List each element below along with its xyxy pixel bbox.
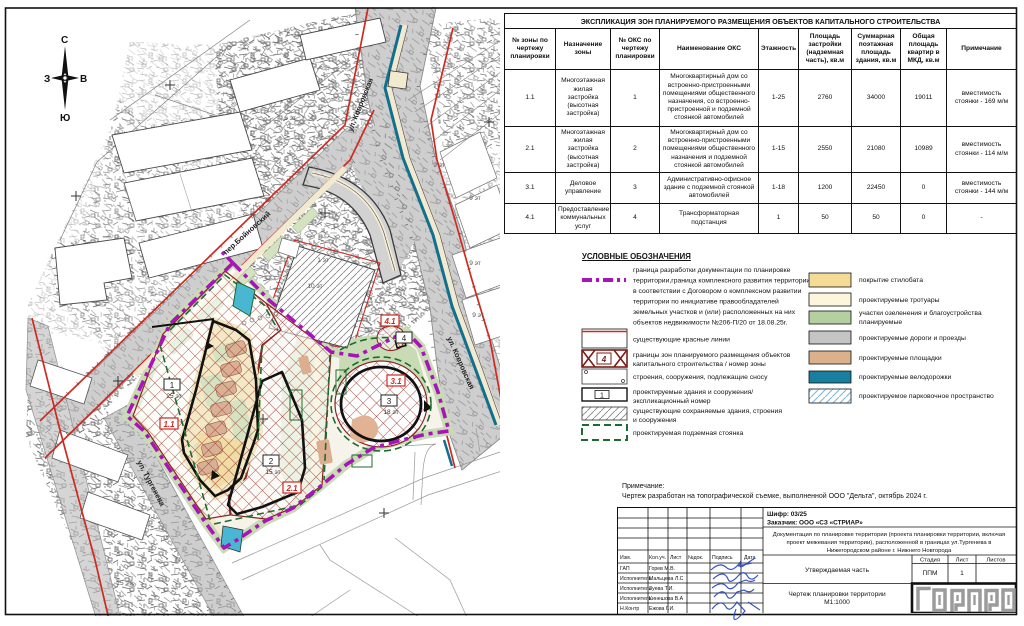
- svg-text:Ю: Ю: [60, 113, 70, 124]
- svg-text:1: 1: [170, 381, 175, 390]
- svg-text:капитального строительства / н: капитального строительства / номер зоны: [633, 361, 766, 368]
- svg-text:С: С: [61, 35, 68, 46]
- svg-text:граница разработки документаци: граница разработки документации по плани…: [633, 266, 791, 274]
- svg-text:в соответствии с Договором о к: в соответствии с Договором о комплексном…: [633, 288, 802, 295]
- svg-text:проектируемые дороги и проезды: проектируемые дороги и проезды: [859, 335, 966, 342]
- svg-text:проектируемые велодорожки: проектируемые велодорожки: [859, 374, 952, 381]
- svg-text:1 эт: 1 эт: [317, 257, 329, 264]
- svg-text:покрытие стилобата: покрытие стилобата: [859, 276, 923, 284]
- svg-text:25 эт: 25 эт: [166, 393, 181, 400]
- svg-text:проектируемые здания и сооруже: проектируемые здания и сооружения/: [633, 389, 753, 396]
- svg-text:4.1: 4.1: [383, 317, 396, 326]
- svg-text:проектируемые тротуары: проектируемые тротуары: [859, 297, 940, 304]
- svg-text:планируемые: планируемые: [859, 319, 902, 326]
- svg-text:проектируемое парковочное прос: проектируемое парковочное пространство: [859, 393, 994, 400]
- svg-text:4: 4: [601, 355, 607, 364]
- svg-text:9 эт: 9 эт: [472, 312, 484, 319]
- svg-text:18 эт: 18 эт: [383, 409, 398, 416]
- svg-text:строения, сооружения, подлежащ: строения, сооружения, подлежащие сносу: [633, 374, 768, 381]
- svg-text:9 эт: 9 эт: [433, 162, 445, 169]
- svg-text:территории,граница комплексног: территории,граница комплексного развития…: [633, 278, 810, 285]
- svg-text:3.1: 3.1: [390, 377, 402, 386]
- svg-text:1: 1: [600, 393, 604, 400]
- svg-text:В: В: [80, 74, 87, 85]
- svg-text:существующие красные линии: существующие красные линии: [633, 337, 730, 344]
- svg-text:земельных участков и (или) рас: земельных участков и (или) расположенных…: [633, 309, 796, 316]
- svg-text:территории по инициативе право: территории по инициативе правообладателе…: [633, 298, 779, 306]
- svg-text:проектируемые площадки: проектируемые площадки: [859, 355, 942, 362]
- svg-text:25 эт: 25 эт: [116, 580, 131, 587]
- svg-text:9 эт: 9 эт: [469, 195, 481, 202]
- svg-text:участки озеленения и благоустр: участки озеленения и благоустройства: [859, 309, 982, 317]
- svg-text:6 эт: 6 эт: [284, 115, 296, 122]
- svg-text:2.1: 2.1: [285, 484, 298, 493]
- svg-text:4: 4: [402, 334, 407, 343]
- svg-text:и сооружения: и сооружения: [633, 417, 677, 424]
- svg-text:существующие сохраняемые здани: существующие сохраняемые здания, строени…: [633, 408, 782, 415]
- svg-text:9 эт: 9 эт: [469, 260, 481, 267]
- svg-text:экспликационный номер: экспликационный номер: [633, 397, 711, 405]
- svg-text:проектируемая подземная стоянк: проектируемая подземная стоянка: [633, 430, 743, 437]
- svg-text:10 эт: 10 эт: [307, 283, 322, 290]
- svg-text:границы зон планируемого разме: границы зон планируемого размещения объе…: [633, 351, 791, 359]
- svg-text:З: З: [44, 74, 50, 85]
- svg-text:3: 3: [387, 397, 392, 406]
- svg-text:1.1: 1.1: [163, 420, 175, 429]
- svg-text:объектов недвижимости №206-П/2: объектов недвижимости №206-П/20 от 18.08…: [633, 319, 787, 327]
- svg-text:2: 2: [269, 457, 274, 466]
- svg-text:15 эт: 15 эт: [265, 469, 280, 476]
